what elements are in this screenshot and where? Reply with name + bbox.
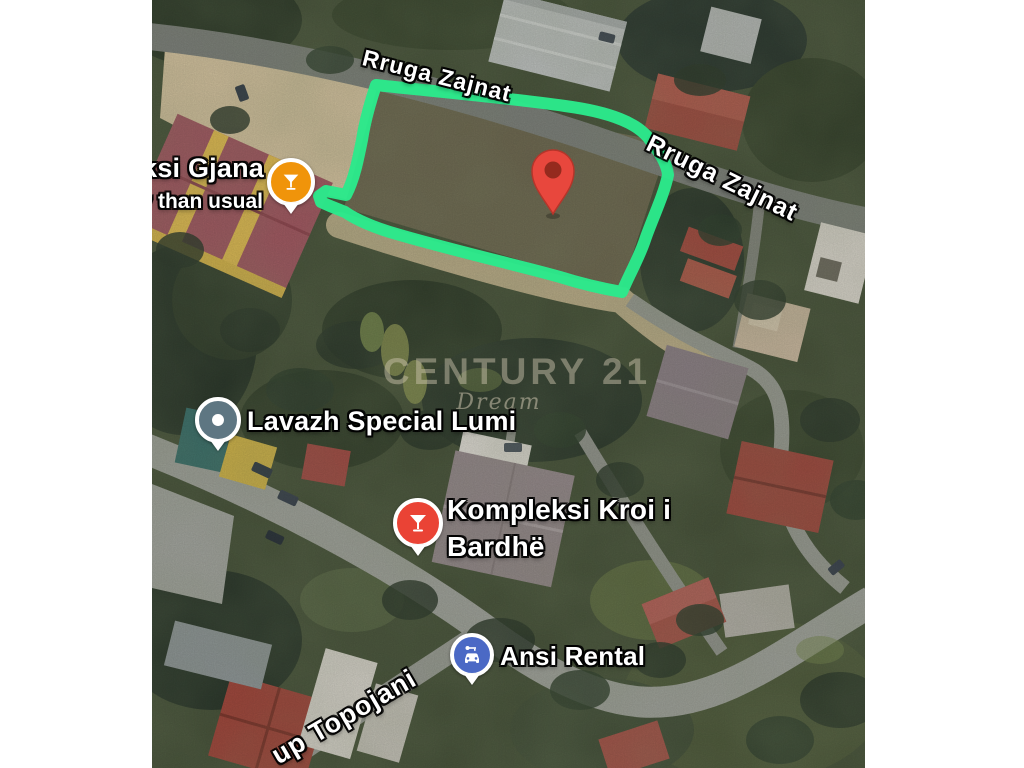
satellite-map[interactable]: CENTURY 21 Dream Rruga Zajnat Rruga Zajn… (152, 0, 865, 768)
watermark-brand: CENTURY 21 (317, 351, 717, 393)
pin-tail (464, 674, 480, 685)
poi-label-kroi-line1[interactable]: Kompleksi Kroi i (447, 494, 671, 526)
poi-pin-ansi-rental[interactable] (450, 633, 494, 685)
poi-pin-kroi-bar[interactable] (393, 498, 443, 556)
poi-pin-lavazh[interactable] (195, 397, 241, 451)
pin-tail (210, 440, 226, 451)
poi-label-lavazh[interactable]: Lavazh Special Lumi (247, 406, 516, 437)
poi-label-kroi-line2[interactable]: Bardhë (447, 531, 545, 563)
pin-tail (410, 545, 426, 556)
poi-pin-gjana-bar[interactable] (267, 158, 315, 214)
cocktail-icon (406, 511, 430, 535)
place-dot-icon (207, 409, 229, 431)
poi-label-gjana[interactable]: ksi Gjana (152, 153, 264, 184)
cocktail-icon (280, 171, 302, 193)
poi-status-gjana: y than usual (152, 190, 263, 214)
poi-label-ansi[interactable]: Ansi Rental (500, 642, 645, 672)
pin-tail (283, 203, 299, 214)
screenshot-frame: CENTURY 21 Dream Rruga Zajnat Rruga Zajn… (0, 0, 1024, 768)
car-rental-icon (460, 643, 484, 667)
